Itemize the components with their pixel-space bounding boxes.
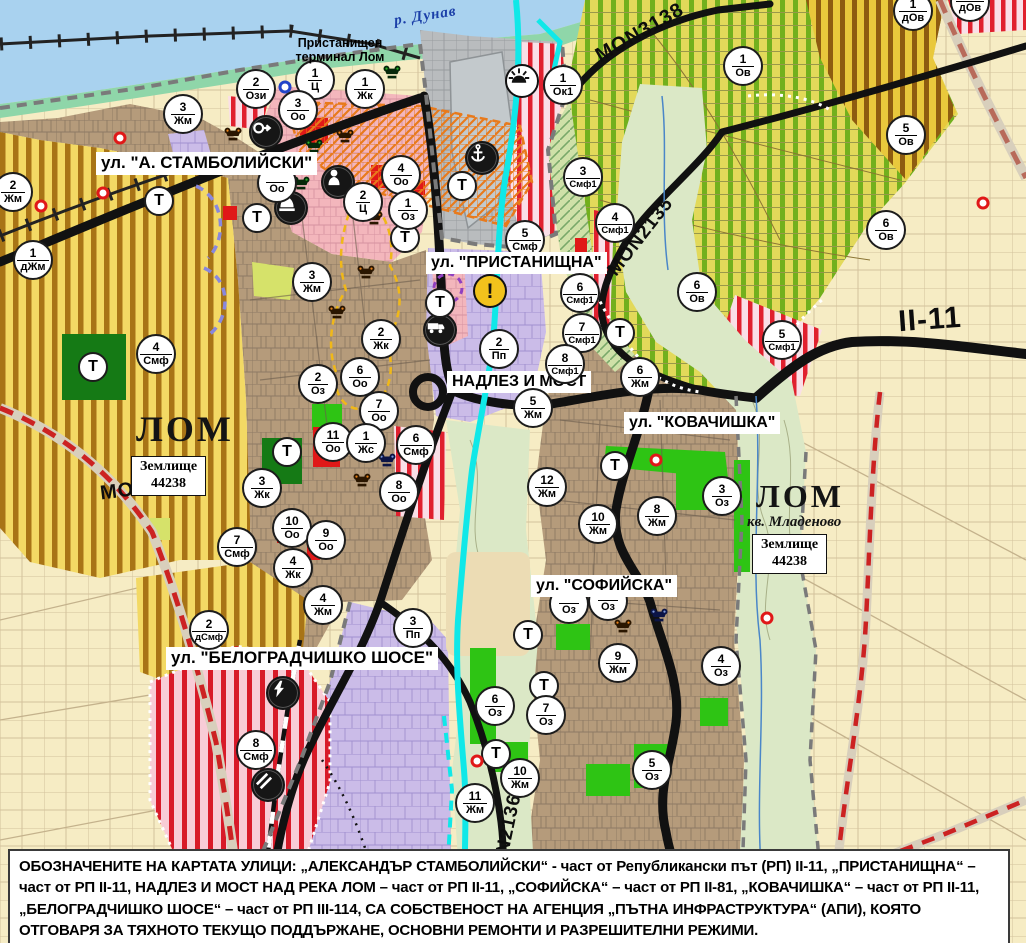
land-plot-west-line2: 44238 xyxy=(140,476,197,493)
port-terminal-label: Пристанищен терминал Лом xyxy=(281,36,399,65)
land-plot-label-west: Землище 44238 xyxy=(131,456,206,496)
land-plot-west-line1: Землище xyxy=(140,459,197,476)
land-plot-east-line1: Землище xyxy=(761,537,818,554)
city-label-west: ЛОМ xyxy=(136,408,234,450)
zoning-map: !TTTTTTTTTTTTОо5СмфОзОз ул. "А. СТАМБОЛИ… xyxy=(0,0,1026,943)
land-plot-label-east: Землище 44238 xyxy=(752,534,827,574)
district-label: кв. Младеново xyxy=(747,514,841,531)
city-label-east: ЛОМ xyxy=(756,478,844,515)
land-plot-east-line2: 44238 xyxy=(761,554,818,571)
legend-note: ОБОЗНАЧЕНИТЕ НА КАРТАТА УЛИЦИ: „АЛЕКСАНД… xyxy=(8,849,1010,943)
